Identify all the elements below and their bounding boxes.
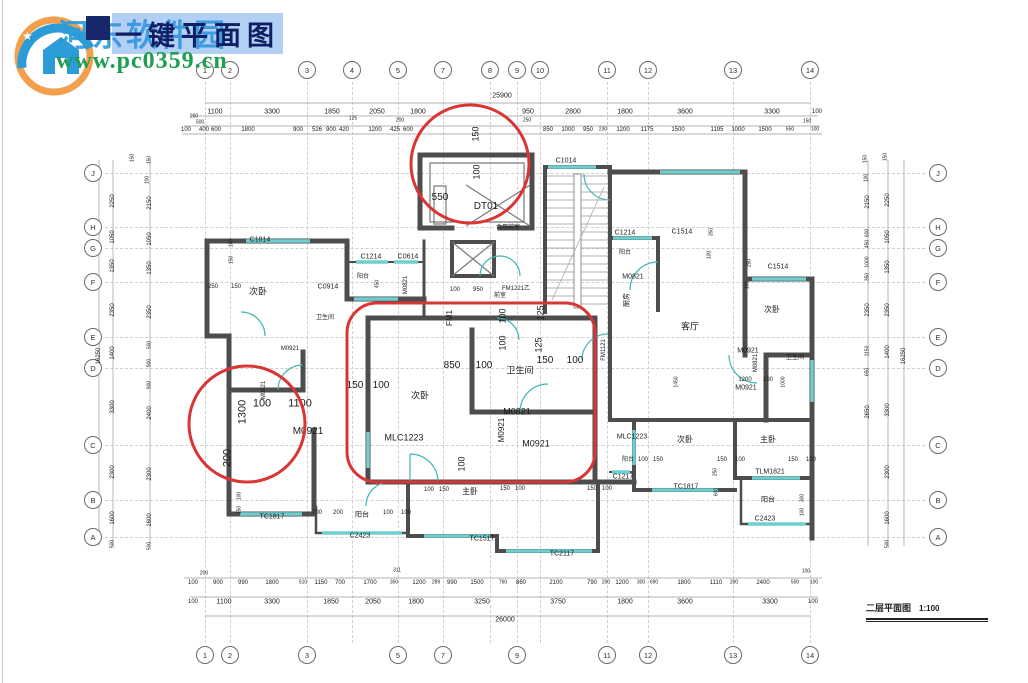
selected-icon-box xyxy=(86,16,110,40)
highlight-box-bedroom xyxy=(347,303,595,482)
watermark-url: www.pc0359.cn xyxy=(56,48,228,75)
watermark-header: ★ 河东软件园 一键平面图 www.pc0359.cn xyxy=(0,0,320,110)
highlight-circle-corner xyxy=(189,366,305,482)
star-icon: ★ xyxy=(22,29,33,43)
screenshot-page: 二层平面图1:100 12345789101112131412357911121… xyxy=(0,0,1028,683)
highlight-circle-elevator xyxy=(411,105,529,223)
